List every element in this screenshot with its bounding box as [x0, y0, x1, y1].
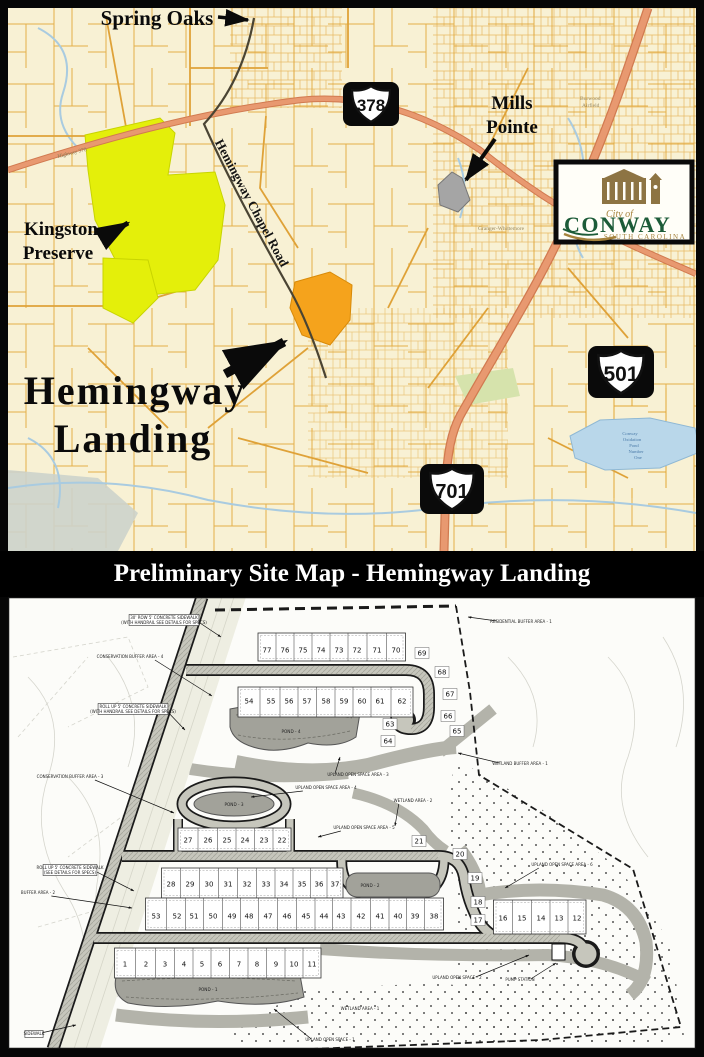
svg-text:Pond: Pond [629, 443, 639, 448]
lot-number: 55 [267, 698, 276, 706]
lot-number: 75 [299, 647, 308, 655]
conway-logo: City of CONWAY SOUTH CAROLINA [556, 162, 692, 242]
granger-label: Granger-Whittemore [478, 226, 525, 232]
lot-number: 9 [274, 961, 278, 969]
annotation-label: WETLAND AREA - 1 [341, 1006, 380, 1011]
lot-number: 18 [474, 899, 483, 907]
lot-number: 16 [499, 915, 508, 923]
pond-label: POND - 4 [281, 729, 300, 734]
annotation-label: PUMP STATION [505, 977, 534, 982]
lot-number: 6 [218, 961, 223, 969]
lot-number: 1 [123, 961, 127, 969]
annotation-label: BUFFER AREA - 2 [21, 890, 56, 895]
pond-label: POND - 1 [198, 987, 217, 992]
lot-number: 23 [260, 837, 269, 845]
lot-number: 10 [290, 961, 299, 969]
lot-number: 51 [190, 913, 199, 921]
lot-number: 17 [474, 917, 483, 925]
lot-number: 45 [302, 913, 311, 921]
annotation-label: UPLAND OPEN SPACE - 1 [305, 1037, 355, 1042]
mills-pointe-label-1: Mills [491, 93, 532, 114]
lot-number: 39 [411, 913, 420, 921]
lot-number: 59 [340, 698, 349, 706]
lot-number: 53 [152, 913, 161, 921]
lot-number: 24 [241, 837, 250, 845]
location-map-svg: Highway 378 Granger-Whittemore Burwood A… [8, 8, 696, 551]
lot-number: 33 [262, 881, 271, 889]
lot-number: 3 [163, 961, 167, 969]
svg-text:Number: Number [628, 449, 644, 454]
lot-number: 43 [337, 913, 346, 921]
pump-station-box [552, 944, 565, 960]
lot-number: 72 [353, 647, 362, 655]
lot-number: 40 [394, 913, 403, 921]
lot-number: 8 [255, 961, 259, 969]
annotation-label-2: (SEE DETAILS FOR SPECS) [44, 870, 96, 875]
lot-number: 64 [384, 738, 393, 746]
lot-number: 62 [398, 698, 407, 706]
annotation-label-2: (WITH HANDRAIL SEE DETAILS FOR SPECS) [90, 709, 176, 714]
annotation-label: UPLAND OPEN SPACE - 2 [432, 975, 482, 980]
lot-number: 47 [264, 913, 273, 921]
lot-number: 25 [223, 837, 232, 845]
lot-number: 54 [245, 698, 254, 706]
lot-number: 35 [298, 881, 307, 889]
svg-text:701: 701 [435, 481, 468, 503]
lot-number: 41 [376, 913, 385, 921]
annotation-label: WETLAND AREA - 2 [394, 798, 433, 803]
lot-number: 36 [315, 881, 324, 889]
lot-number: 58 [322, 698, 331, 706]
lot-number: 56 [285, 698, 294, 706]
annotation-label: CONSERVATION BUFFER AREA - 4 [97, 654, 164, 659]
shield-501: 501 [588, 346, 654, 398]
lot-number: 63 [386, 721, 395, 729]
lot-number: 42 [357, 913, 366, 921]
burwood-label-1: Burwood [580, 96, 601, 102]
pond-label: POND - 2 [360, 883, 379, 888]
lot-number: 44 [320, 913, 329, 921]
lot-number: 30 [205, 881, 214, 889]
lot-number: 31 [224, 881, 233, 889]
lot-number: 46 [283, 913, 292, 921]
lot-number: 68 [438, 669, 447, 677]
lot-number: 76 [281, 647, 290, 655]
lot-number: 4 [182, 961, 187, 969]
lot-number: 49 [228, 913, 237, 921]
lot-number: 66 [444, 713, 453, 721]
lot-number: 73 [335, 647, 344, 655]
lot-number: 69 [418, 650, 427, 658]
svg-text:378: 378 [357, 96, 385, 115]
burwood-label-2: Airfield [582, 102, 600, 109]
annotation-label: SIDEWALK [24, 1031, 45, 1036]
kingston-label-2: Preserve [23, 243, 93, 264]
shield-701: 701 [420, 464, 484, 514]
lot-number: 7 [237, 961, 241, 969]
lot-number: 77 [263, 647, 272, 655]
lot-number: 34 [280, 881, 289, 889]
lot-number: 65 [453, 728, 462, 736]
lot-number: 5 [200, 961, 204, 969]
annotation-label: UPLAND OPEN SPACE AREA - 4 [295, 785, 357, 790]
hemingway-landing-label-1: Hemingway [24, 368, 246, 413]
lot-number: 57 [303, 698, 312, 706]
annotation-label: CONSERVATION BUFFER AREA - 3 [37, 774, 104, 779]
site-plan: 7776757473727170545556575859606162272625… [8, 597, 696, 1049]
title-bar: Preliminary Site Map - Hemingway Landing [0, 551, 704, 597]
lot-number: 21 [415, 838, 424, 846]
lot-number: 11 [308, 961, 317, 969]
lot-number: 61 [376, 698, 385, 706]
lot-number: 22 [278, 837, 287, 845]
lot-number: 71 [373, 647, 382, 655]
lot-number: 37 [331, 881, 340, 889]
lot-number: 14 [537, 915, 546, 923]
svg-text:One: One [634, 455, 642, 460]
annotation-label: UPLAND OPEN SPACE AREA - 5 [333, 825, 395, 830]
annotation-label: UPLAND OPEN SPACE AREA - 3 [327, 772, 389, 777]
lot-number: 74 [317, 647, 326, 655]
lot-number: 29 [186, 881, 195, 889]
lot-number: 32 [243, 881, 252, 889]
site-plan-svg: 7776757473727170545556575859606162272625… [8, 597, 696, 1049]
annotation-label: WETLAND BUFFER AREA - 1 [492, 761, 548, 766]
kingston-label-1: Kingston [24, 219, 98, 240]
lot-number: 19 [471, 875, 480, 883]
svg-text:501: 501 [603, 363, 638, 386]
lot-number: 12 [573, 915, 582, 923]
lot-number: 15 [518, 915, 527, 923]
mills-pointe-label-2: Pointe [486, 117, 538, 138]
annotation-label: RESIDENTIAL BUFFER AREA - 1 [490, 619, 552, 624]
annotation-label: UPLAND OPEN SPACE AREA - 6 [531, 862, 593, 867]
spring-oaks-label: Spring Oaks [101, 8, 214, 30]
annotation-label-2: (WITH HANDRAIL SEE DETAILS FOR SPECS) [121, 620, 207, 625]
svg-text:Oxidation: Oxidation [623, 437, 642, 442]
hemingway-landing-label-2: Landing [54, 416, 213, 461]
page: Highway 378 Granger-Whittemore Burwood A… [0, 0, 704, 1057]
lot-number: 60 [358, 698, 367, 706]
lot-number: 28 [167, 881, 176, 889]
lot-number: 20 [456, 851, 465, 859]
lot-block [178, 828, 291, 851]
shield-378: 378 [343, 82, 399, 126]
lot-number: 13 [555, 915, 564, 923]
location-map: Highway 378 Granger-Whittemore Burwood A… [8, 8, 696, 551]
lot-number: 27 [184, 837, 193, 845]
lot-number: 26 [204, 837, 213, 845]
lot-number: 48 [245, 913, 254, 921]
lot-number: 67 [446, 691, 455, 699]
lot-number: 38 [430, 913, 439, 921]
lot-number: 50 [209, 913, 218, 921]
logo-state: SOUTH CAROLINA [604, 233, 686, 241]
lot-number: 70 [392, 647, 401, 655]
page-title: Preliminary Site Map - Hemingway Landing [114, 560, 591, 588]
pond-label: POND - 3 [224, 802, 243, 807]
svg-text:Conway: Conway [622, 431, 638, 436]
lot-number: 2 [144, 961, 148, 969]
lot-number: 52 [173, 913, 182, 921]
